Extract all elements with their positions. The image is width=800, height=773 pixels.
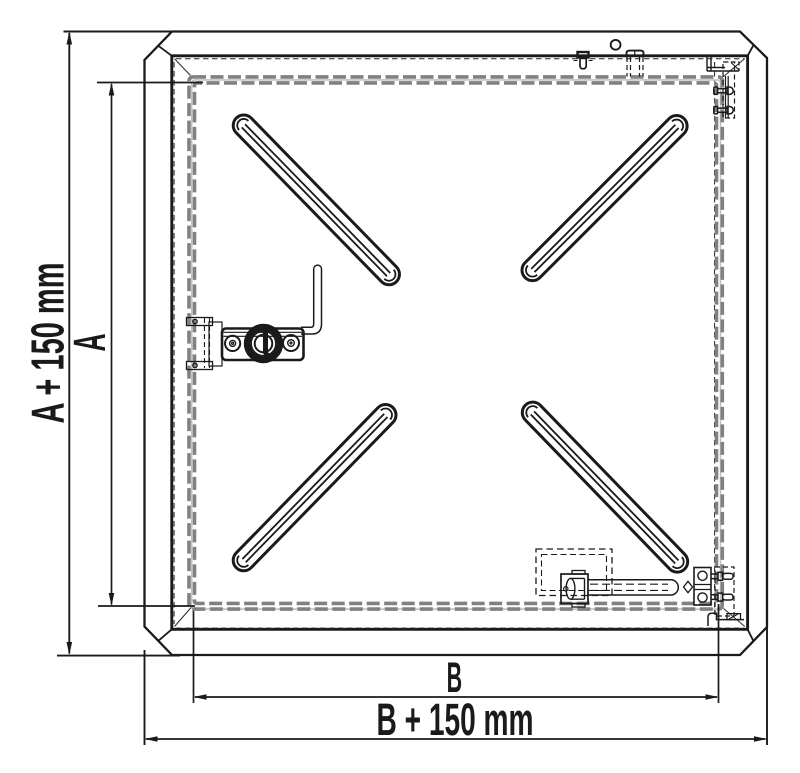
svg-text:A: A <box>64 334 115 352</box>
svg-text:B + 150 mm: B + 150 mm <box>377 694 534 745</box>
